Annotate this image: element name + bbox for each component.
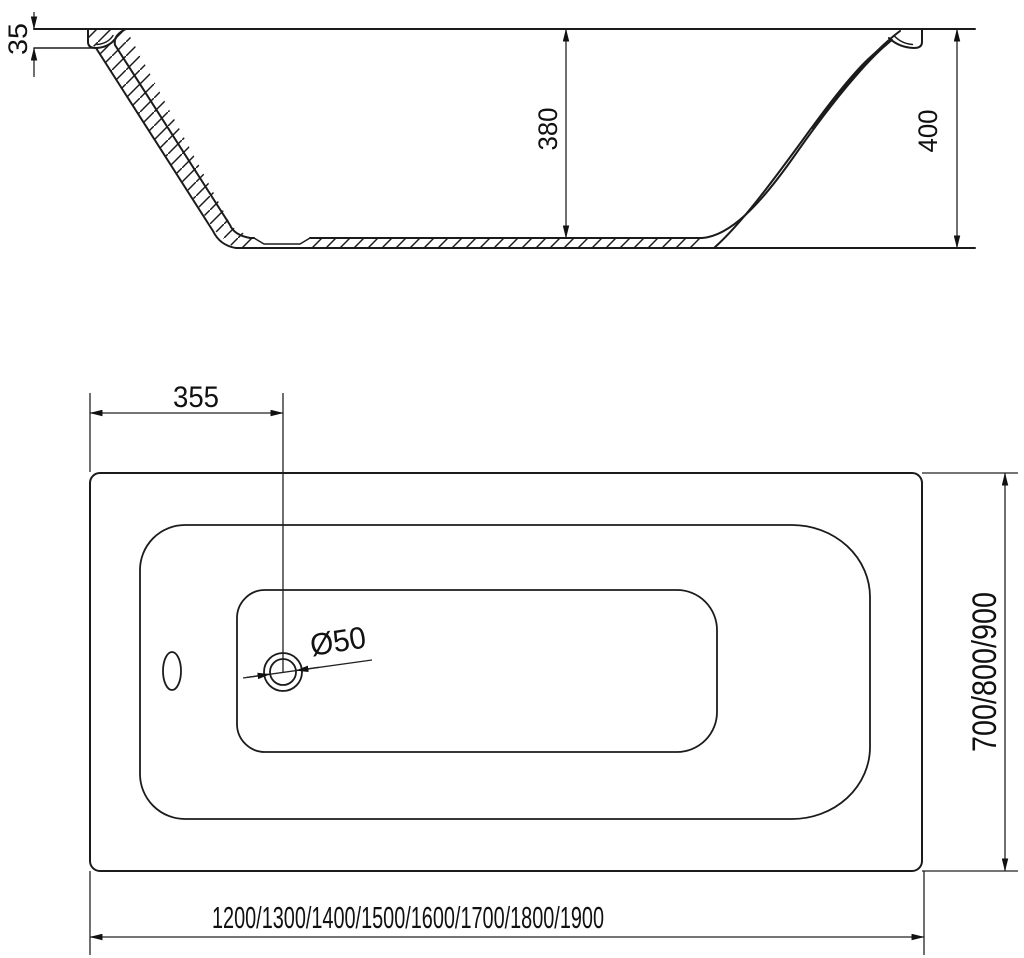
dim-total-height: 400 [913, 29, 957, 248]
dim-width-options-label: 700/800/900 [966, 592, 1004, 752]
dim-inner-depth: 380 [533, 29, 566, 238]
section-view: 35 380 400 [3, 12, 975, 248]
dim-length-options-label: 1200/1300/1400/1500/1600/1700/1800/1900 [212, 900, 604, 935]
bathtub-technical-drawing: 35 380 400 355 [0, 0, 1024, 958]
dim-inner-depth-label: 380 [533, 108, 563, 151]
dim-width-options: 700/800/900 [922, 473, 1018, 871]
dim-drain-diameter: Ø50 [243, 620, 372, 678]
plan-inner-rim [140, 525, 870, 819]
dim-drain-diameter-label: Ø50 [308, 620, 369, 663]
dim-drain-offset-label: 355 [173, 381, 219, 414]
section-wall-hatch [88, 29, 702, 248]
section-right-wall-curve-inner [702, 40, 892, 238]
plan-outer-rim [90, 473, 922, 871]
plan-overflow-hole [163, 652, 181, 690]
dim-total-height-label: 400 [913, 110, 943, 153]
dim-length-options: 1200/1300/1400/1500/1600/1700/1800/1900 [90, 871, 924, 955]
plan-floor-edge [237, 590, 717, 752]
dim-rim-thickness: 35 [3, 12, 34, 77]
section-right-rim-lip [889, 29, 922, 48]
dim-drain-offset: 355 [90, 381, 283, 672]
plan-view: 355 Ø50 1200/1300/1400/1500/1600/1700/18… [90, 381, 1018, 955]
dim-rim-thickness-label: 35 [3, 23, 33, 55]
section-drain-recess-mask [254, 237, 310, 248]
